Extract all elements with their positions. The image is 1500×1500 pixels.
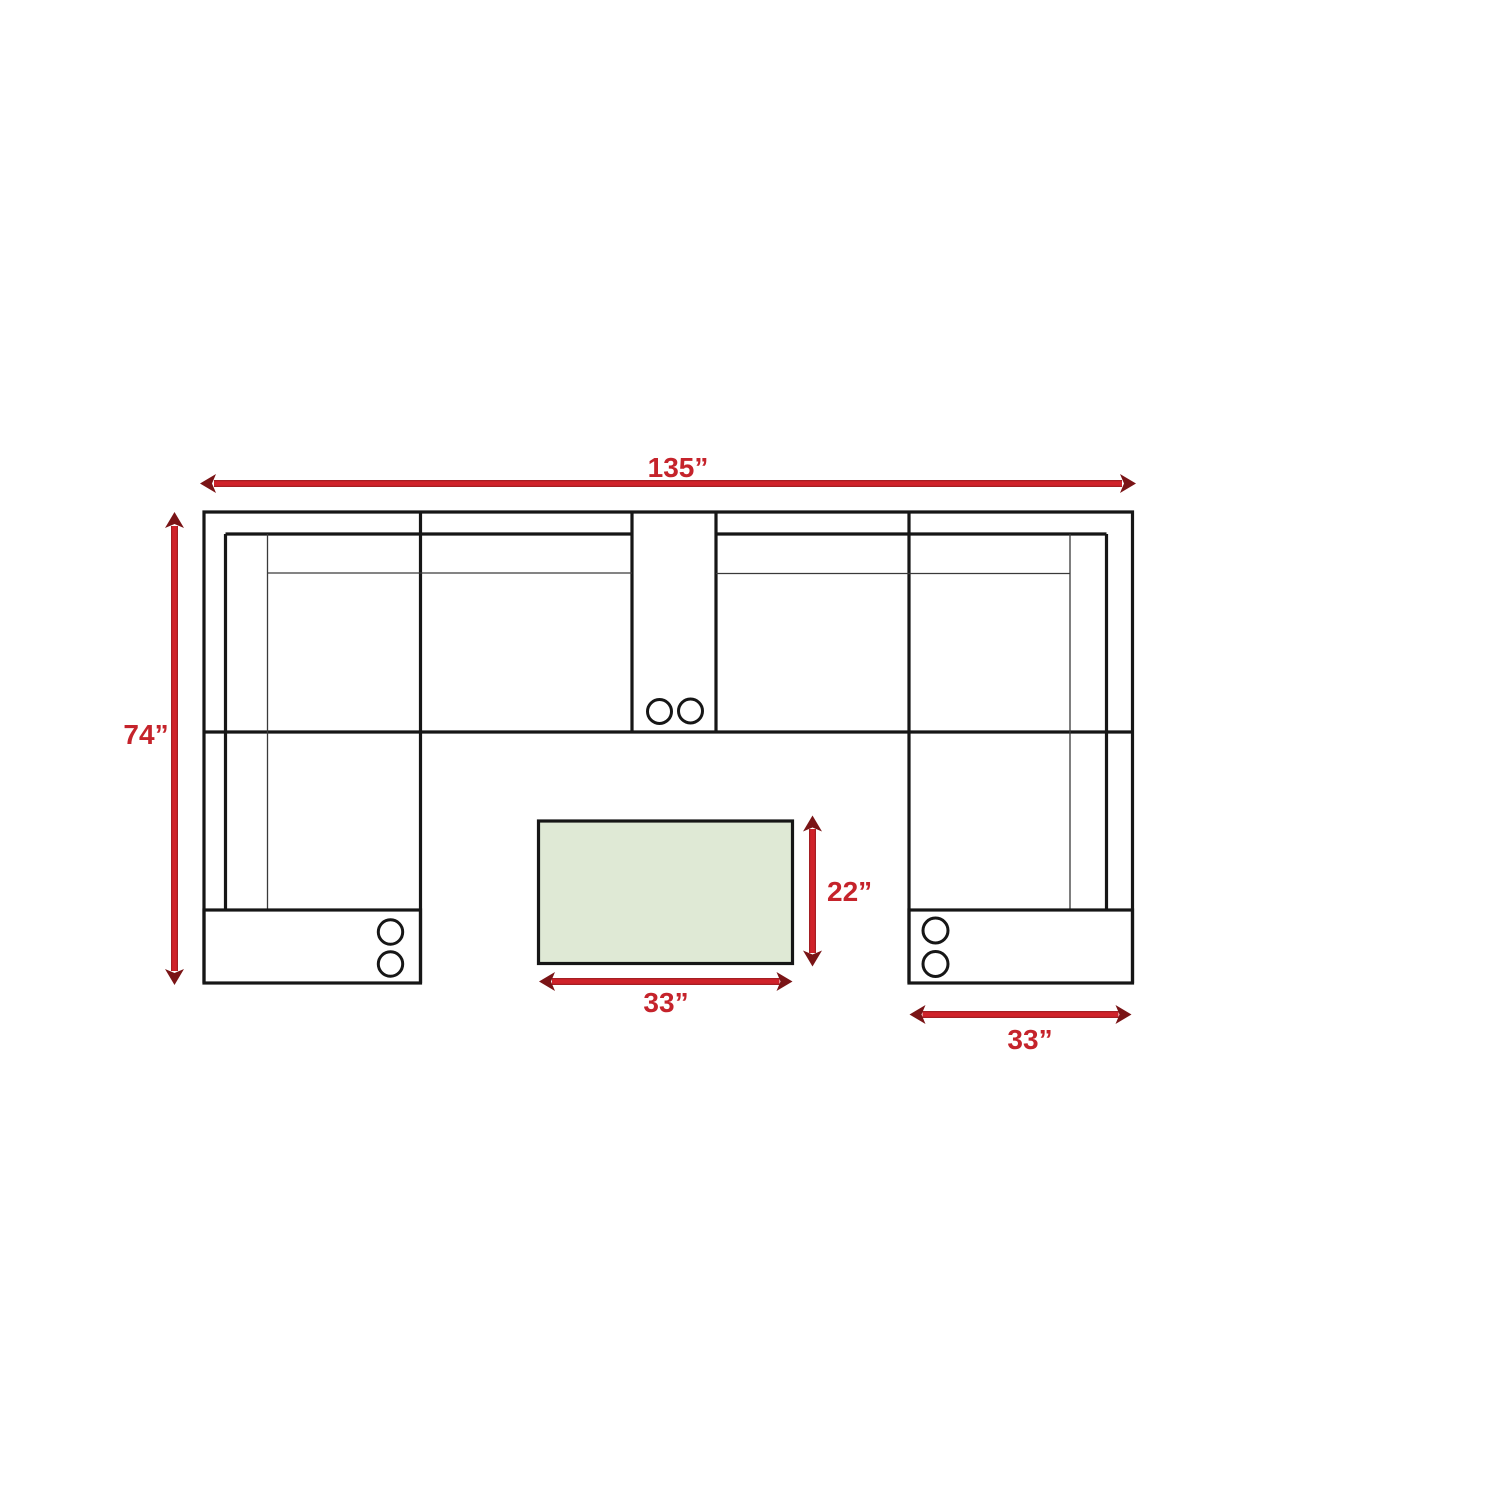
svg-text:22”: 22” <box>827 876 872 907</box>
svg-text:33”: 33” <box>1007 1024 1052 1055</box>
svg-text:74”: 74” <box>123 719 168 750</box>
svg-text:33”: 33” <box>643 987 688 1018</box>
svg-text:135”: 135” <box>648 452 709 483</box>
